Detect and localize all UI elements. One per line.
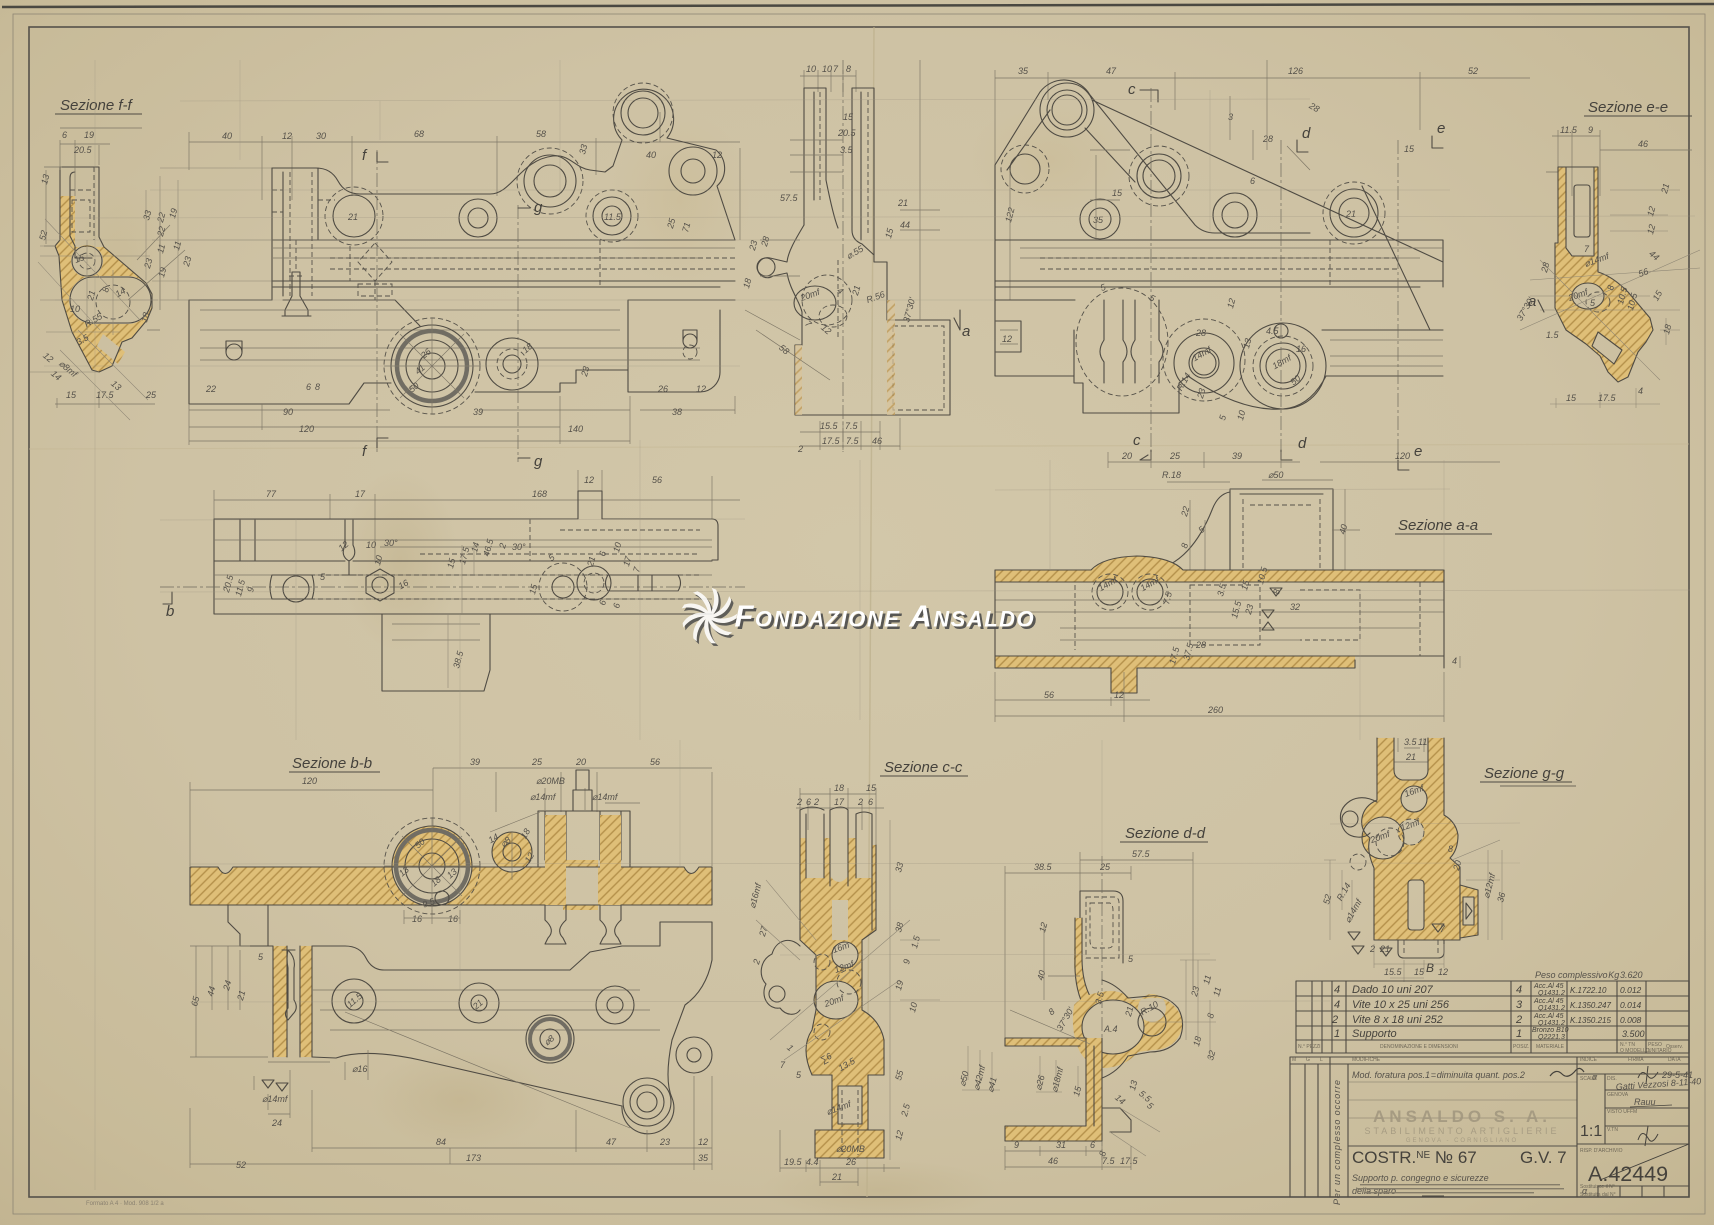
svg-text:38: 38 [672, 407, 682, 417]
svg-text:e: e [1437, 120, 1445, 137]
svg-text:15: 15 [66, 390, 77, 400]
svg-text:24: 24 [271, 1118, 282, 1128]
svg-text:K.1722.10: K.1722.10 [1570, 986, 1607, 995]
svg-text:⌀20MB: ⌀20MB [836, 1144, 865, 1154]
svg-text:20: 20 [575, 757, 586, 767]
svg-text:⌀50: ⌀50 [1268, 470, 1283, 480]
svg-text:23: 23 [659, 1137, 670, 1147]
svg-text:21: 21 [897, 198, 908, 208]
svg-text:Sezione g-g: Sezione g-g [1484, 765, 1565, 782]
svg-text:2: 2 [1331, 1014, 1338, 1026]
svg-text:20.5: 20.5 [73, 145, 93, 155]
svg-text:Osserv.: Osserv. [1666, 1044, 1683, 1050]
svg-text:Fondazione Ansaldo: Fondazione Ansaldo [735, 599, 1036, 634]
svg-text:57.5: 57.5 [1132, 849, 1151, 859]
svg-text:52: 52 [1468, 66, 1478, 76]
svg-text:21: 21 [1345, 209, 1356, 219]
svg-text:12: 12 [1002, 334, 1012, 344]
svg-text:3: 3 [1228, 112, 1233, 122]
svg-text:39: 39 [1232, 451, 1242, 461]
svg-text:47: 47 [1106, 66, 1117, 76]
svg-text:2: 2 [1369, 944, 1375, 954]
svg-text:9: 9 [1014, 1140, 1019, 1150]
svg-text:1: 1 [1516, 1028, 1522, 1040]
svg-text:12: 12 [696, 384, 706, 394]
svg-text:g: g [534, 453, 543, 470]
svg-text:VISTO UFFM: VISTO UFFM [1607, 1109, 1637, 1115]
svg-text:31: 31 [1056, 1140, 1066, 1150]
svg-text:58: 58 [536, 129, 546, 139]
svg-text:47: 47 [606, 1137, 617, 1147]
svg-text:4: 4 [1638, 386, 1643, 396]
svg-text:2: 2 [1515, 1014, 1522, 1026]
svg-text:17: 17 [355, 489, 366, 499]
svg-text:17.5: 17.5 [1598, 393, 1617, 403]
svg-text:46: 46 [1638, 139, 1648, 149]
svg-text:28: 28 [1262, 134, 1273, 144]
svg-text:126: 126 [1288, 66, 1303, 76]
svg-text:1.5: 1.5 [1546, 330, 1560, 340]
svg-text:15: 15 [1404, 144, 1415, 154]
svg-text:Rauu: Rauu [1634, 1097, 1656, 1107]
svg-text:Formato A 4 · Mod. 908 1/2 a: Formato A 4 · Mod. 908 1/2 a [86, 1201, 164, 1207]
svg-text:46: 46 [1048, 1156, 1058, 1166]
svg-text:0.008: 0.008 [1620, 1015, 1642, 1025]
svg-text:56: 56 [652, 475, 662, 485]
svg-text:26: 26 [657, 384, 668, 394]
svg-text:20: 20 [1121, 451, 1132, 461]
svg-text:44: 44 [900, 220, 910, 230]
svg-text:77: 77 [266, 489, 277, 499]
svg-text:Acc.Al 45: Acc.Al 45 [1533, 983, 1564, 990]
svg-text:17.5: 17.5 [822, 436, 841, 446]
svg-text:⌀16: ⌀16 [352, 1064, 367, 1074]
svg-text:52: 52 [236, 1160, 246, 1170]
svg-text:3.5: 3.5 [1404, 737, 1418, 747]
svg-text:12: 12 [282, 131, 292, 141]
svg-text:40: 40 [222, 131, 232, 141]
svg-text:4.5: 4.5 [1266, 326, 1280, 336]
svg-text:4: 4 [1334, 984, 1340, 996]
svg-text:a: a [1528, 293, 1536, 310]
svg-text:46: 46 [872, 436, 882, 446]
svg-text:ANSALDO S. A.: ANSALDO S. A. [1373, 1107, 1551, 1126]
svg-text:2: 2 [797, 444, 803, 454]
svg-text:2: 2 [796, 797, 802, 807]
svg-text:7.5: 7.5 [845, 421, 859, 431]
svg-text:9: 9 [1588, 125, 1593, 135]
svg-text:25: 25 [1169, 451, 1181, 461]
svg-text:1:1: 1:1 [1580, 1123, 1602, 1140]
svg-text:39: 39 [473, 407, 483, 417]
svg-text:4: 4 [1334, 999, 1340, 1011]
svg-text:Vite 10 x 25 uni 256: Vite 10 x 25 uni 256 [1352, 999, 1450, 1011]
svg-text:84: 84 [436, 1137, 446, 1147]
svg-text:90: 90 [283, 407, 293, 417]
svg-text:M: M [1292, 1057, 1296, 1063]
svg-text:56: 56 [650, 757, 660, 767]
svg-text:16: 16 [448, 914, 458, 924]
svg-text:4: 4 [1516, 984, 1522, 996]
svg-text:DENOMINAZIONE E DIMENSIONI: DENOMINAZIONE E DIMENSIONI [1380, 1044, 1458, 1050]
svg-text:Acc.Al 45: Acc.Al 45 [1533, 1013, 1564, 1020]
svg-text:28: 28 [1195, 640, 1206, 650]
svg-text:Dado 10 uni 207: Dado 10 uni 207 [1352, 984, 1434, 996]
svg-text:⌀20MB: ⌀20MB [536, 776, 565, 786]
svg-text:COSTR.NE № 67: COSTR.NE № 67 [1352, 1148, 1477, 1167]
svg-text:GENOVA - CORNIGLIANO: GENOVA - CORNIGLIANO [1406, 1138, 1518, 1144]
svg-text:Q2221.3: Q2221.3 [1538, 1034, 1565, 1041]
svg-text:120: 120 [299, 424, 314, 434]
svg-text:g: g [534, 199, 543, 216]
svg-text:INDICE: INDICE [1580, 1057, 1598, 1063]
svg-text:10: 10 [70, 304, 80, 314]
svg-text:140: 140 [568, 424, 583, 434]
svg-text:26: 26 [845, 1157, 856, 1167]
svg-text:11.5: 11.5 [1560, 125, 1578, 135]
svg-text:120: 120 [302, 776, 317, 786]
svg-text:21: 21 [1405, 752, 1416, 762]
svg-text:Q1431.2: Q1431.2 [1538, 1020, 1565, 1027]
svg-text:19: 19 [84, 130, 94, 140]
svg-text:N.° PEZZI: N.° PEZZI [1298, 1044, 1321, 1050]
svg-text:SCALA: SCALA [1580, 1076, 1597, 1082]
svg-text:A.4: A.4 [1103, 1024, 1118, 1034]
svg-text:G.V. 7: G.V. 7 [1520, 1148, 1567, 1167]
svg-text:3: 3 [1516, 999, 1523, 1011]
svg-text:22: 22 [205, 384, 216, 394]
svg-text:17.5: 17.5 [1120, 1156, 1139, 1166]
svg-text:⌀14mf: ⌀14mf [262, 1094, 289, 1104]
svg-text:MATERIALE: MATERIALE [1536, 1044, 1565, 1050]
svg-text:Bronzo B10: Bronzo B10 [1532, 1027, 1569, 1034]
svg-text:R.18: R.18 [1162, 470, 1181, 480]
svg-text:Sezione e-e: Sezione e-e [1588, 99, 1668, 116]
svg-text:⌀14mf: ⌀14mf [530, 792, 557, 802]
svg-text:Supporto p. congegno e sicurez: Supporto p. congegno e sicurezze [1352, 1173, 1489, 1183]
svg-text:b: b [166, 603, 174, 620]
svg-text:Sezione f-f: Sezione f-f [60, 97, 134, 114]
svg-text:16: 16 [412, 914, 422, 924]
svg-text:K.1350.215: K.1350.215 [1570, 1016, 1611, 1025]
svg-text:18: 18 [834, 783, 844, 793]
svg-text:260: 260 [1207, 705, 1223, 715]
svg-text:⌀14mf: ⌀14mf [592, 792, 619, 802]
svg-text:173: 173 [466, 1153, 481, 1163]
svg-text:Vite 8 x 18 uni 252: Vite 8 x 18 uni 252 [1352, 1014, 1443, 1026]
svg-text:120: 120 [1395, 451, 1410, 461]
svg-text:Q1431.2: Q1431.2 [1538, 990, 1565, 997]
svg-text:12: 12 [698, 1137, 708, 1147]
svg-text:FIRMA: FIRMA [1628, 1057, 1644, 1063]
svg-text:G: G [1306, 1057, 1310, 1063]
svg-text:56: 56 [1044, 690, 1054, 700]
svg-text:15: 15 [1414, 967, 1425, 977]
svg-text:35: 35 [1018, 66, 1029, 76]
svg-text:della sparo: della sparo [1352, 1186, 1396, 1196]
svg-text:15: 15 [1112, 188, 1123, 198]
svg-text:α: α [1582, 1186, 1588, 1196]
svg-text:10: 10 [822, 64, 832, 74]
svg-text:12: 12 [1114, 690, 1124, 700]
svg-text:6: 6 [868, 797, 873, 807]
svg-text:Sezione c-c: Sezione c-c [884, 759, 963, 776]
svg-text:39: 39 [470, 757, 480, 767]
svg-text:6: 6 [62, 130, 67, 140]
svg-text:Supporto: Supporto [1352, 1028, 1397, 1040]
svg-text:40: 40 [646, 150, 656, 160]
svg-text:Sezione b-b: Sezione b-b [292, 755, 372, 772]
svg-text:19.5: 19.5 [784, 1157, 803, 1167]
svg-text:4: 4 [1452, 656, 1457, 666]
svg-text:32: 32 [1290, 602, 1300, 612]
svg-text:Acc.Al 45: Acc.Al 45 [1533, 998, 1564, 1005]
svg-text:O MODELLO: O MODELLO [1620, 1048, 1650, 1054]
svg-text:0.014: 0.014 [1620, 1000, 1642, 1010]
svg-text:15.5: 15.5 [1384, 967, 1403, 977]
svg-text:168: 168 [532, 489, 547, 499]
svg-text:15: 15 [843, 112, 854, 122]
svg-text:GENOVA: GENOVA [1607, 1092, 1629, 1098]
svg-text:Per un complesso occorre: Per un complesso occorre [1332, 1080, 1342, 1205]
svg-text:0.012: 0.012 [1620, 985, 1642, 995]
svg-text:Q1431.2: Q1431.2 [1538, 1005, 1565, 1012]
svg-text:d: d [1302, 125, 1311, 142]
svg-text:25: 25 [531, 757, 543, 767]
svg-text:4.4: 4.4 [806, 1157, 819, 1167]
svg-text:Peso complessivo Kg 3.620: Peso complessivo Kg 3.620 [1535, 970, 1643, 980]
svg-text:17: 17 [834, 797, 845, 807]
svg-text:d: d [1298, 435, 1307, 452]
svg-text:6: 6 [1090, 1140, 1095, 1150]
svg-text:Mod. foratura pos.1 = diminuit: Mod. foratura pos.1 = diminuita quant. p… [1352, 1070, 1525, 1080]
svg-text:e: e [1414, 443, 1422, 460]
svg-text:21: 21 [831, 1172, 842, 1182]
svg-text:A.42449: A.42449 [1588, 1162, 1668, 1186]
svg-text:6: 6 [1250, 176, 1255, 186]
svg-text:68: 68 [414, 129, 424, 139]
svg-text:2: 2 [813, 797, 819, 807]
svg-text:8: 8 [846, 64, 851, 74]
svg-text:1: 1 [1334, 1028, 1340, 1040]
svg-text:2: 2 [857, 797, 863, 807]
svg-text:30°: 30° [384, 538, 398, 548]
svg-text:B: B [1426, 961, 1434, 975]
svg-text:Sezione d-d: Sezione d-d [1125, 825, 1206, 842]
svg-text:6: 6 [806, 797, 811, 807]
svg-text:28: 28 [1195, 328, 1206, 338]
svg-text:8: 8 [1448, 844, 1453, 854]
svg-text:POSIZ.: POSIZ. [1513, 1044, 1529, 1050]
svg-text:3.5: 3.5 [840, 145, 854, 155]
svg-text:c: c [1128, 81, 1136, 98]
svg-text:35: 35 [698, 1153, 709, 1163]
svg-text:MODIFICHE: MODIFICHE [1352, 1057, 1381, 1063]
svg-text:a: a [962, 323, 970, 340]
svg-text:V.TN: V.TN [1607, 1127, 1618, 1133]
svg-text:RISP. D'ARCHIVIO: RISP. D'ARCHIVIO [1580, 1148, 1623, 1154]
svg-text:17.5: 17.5 [96, 390, 115, 400]
svg-text:16: 16 [1296, 344, 1306, 354]
svg-text:15: 15 [866, 783, 877, 793]
svg-text:K.1350.247: K.1350.247 [1570, 1001, 1611, 1010]
svg-text:12: 12 [584, 475, 594, 485]
svg-text:21: 21 [347, 212, 358, 222]
svg-text:10: 10 [806, 64, 816, 74]
svg-text:7.5: 7.5 [846, 436, 860, 446]
svg-text:57.5: 57.5 [780, 193, 799, 203]
svg-text:DATA: DATA [1668, 1057, 1681, 1063]
svg-text:20.5: 20.5 [837, 128, 857, 138]
svg-text:11.5: 11.5 [604, 212, 622, 222]
svg-text:30: 30 [316, 131, 326, 141]
svg-text:30°: 30° [512, 542, 526, 552]
svg-text:12: 12 [1438, 967, 1448, 977]
svg-text:3.500: 3.500 [1622, 1029, 1645, 1039]
svg-text:L: L [1320, 1057, 1323, 1063]
svg-text:Sezione a-a: Sezione a-a [1398, 517, 1478, 534]
svg-text:15: 15 [1566, 393, 1577, 403]
svg-text:25: 25 [145, 390, 157, 400]
svg-text:STABILIMENTO ARTIGLIERIE: STABILIMENTO ARTIGLIERIE [1364, 1126, 1559, 1136]
svg-text:68: 68 [306, 382, 324, 392]
svg-text:15.5: 15.5 [820, 421, 839, 431]
svg-text:c: c [1133, 432, 1141, 449]
svg-text:10: 10 [366, 540, 376, 550]
